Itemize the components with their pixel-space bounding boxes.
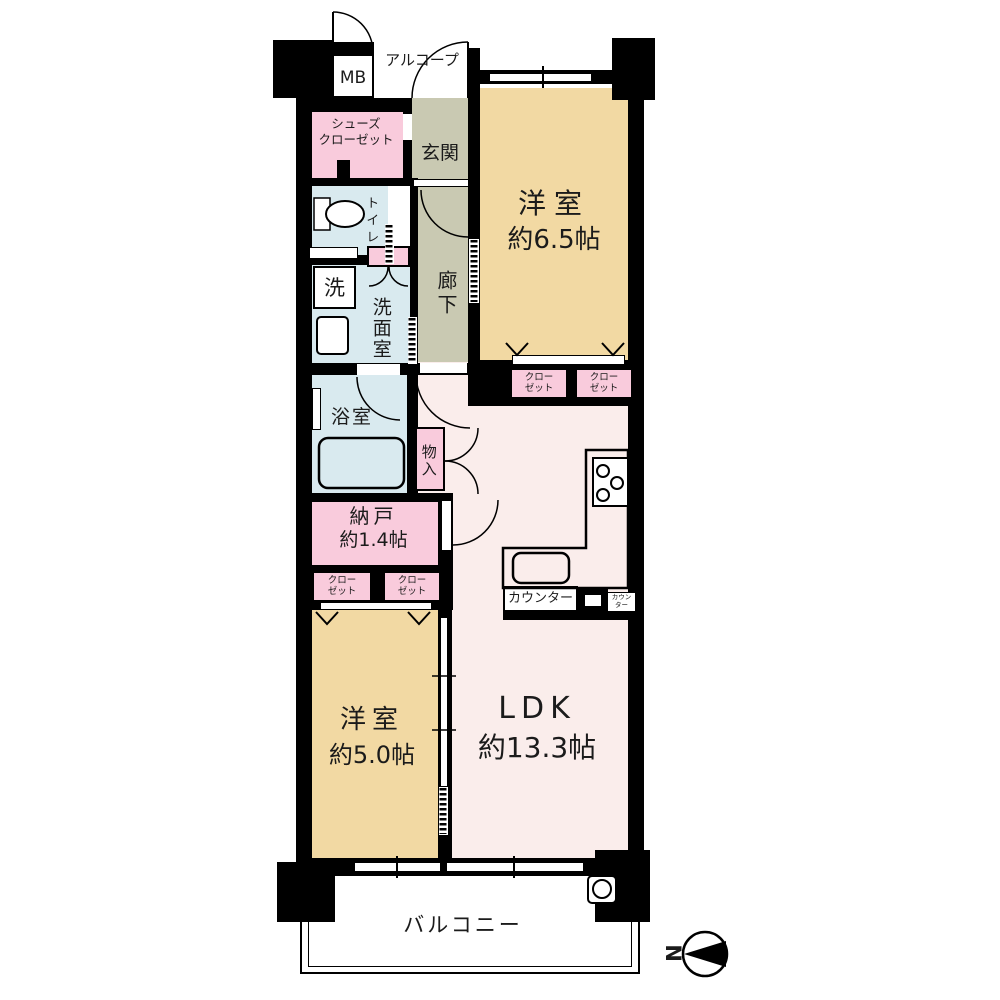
- ldk-size: 約13.3帖: [437, 730, 637, 765]
- storeroom-size: 約1.4帖: [306, 529, 441, 553]
- shoes-closet-line1: シューズ: [306, 116, 406, 132]
- storage-door-arc: [445, 428, 478, 461]
- ldk-door-arc: [416, 374, 470, 428]
- storage-label: 物入: [419, 432, 438, 490]
- wash-basin-icon: [317, 317, 348, 354]
- western-room-1-size: 約6.5帖: [478, 224, 630, 257]
- shoes-closet-line2: クローゼット: [306, 132, 406, 148]
- hallway-label: 廊下: [433, 252, 458, 336]
- western-room-1-label: 洋室 約6.5帖: [478, 186, 630, 257]
- washroom-door-arc: [369, 267, 388, 286]
- compass-north-label: N: [660, 941, 686, 965]
- alcove-label: アルコープ: [376, 51, 468, 70]
- stove-burner-icon: [611, 477, 623, 489]
- kitchen-sink-icon: [513, 553, 569, 583]
- stove-burner-icon: [597, 465, 609, 477]
- stove-burner-icon: [597, 489, 609, 501]
- mb-label: MB: [332, 68, 374, 89]
- ldk-label: LDK 約13.3帖: [437, 690, 637, 765]
- storage-door-arc: [445, 461, 478, 494]
- balcony-label: バルコニー: [383, 912, 543, 938]
- laundry-label: 洗: [314, 275, 355, 301]
- bathroom-label: 浴室: [314, 406, 390, 430]
- bathtub-icon: [319, 438, 404, 488]
- western-room-2-label: 洋室 約5.0帖: [306, 704, 438, 770]
- balcony-faucet-icon: [593, 880, 611, 898]
- washroom-label: 洗面室: [368, 288, 392, 368]
- floor-plan: クロー ゼット クロー ゼット クロー ゼット クロー ゼット カウンター カウ…: [0, 0, 1000, 1000]
- closet-fold-mark: [602, 343, 624, 355]
- entrance-label: 玄関: [412, 142, 468, 166]
- floorplan-graphics: [0, 0, 1000, 1000]
- western-room-2-size: 約5.0帖: [306, 740, 438, 770]
- shoes-closet-label: シューズ クローゼット: [306, 116, 406, 147]
- washroom-door-arc: [389, 267, 408, 286]
- toilet-bowl-icon: [326, 201, 364, 227]
- closet-fold-mark: [408, 612, 430, 624]
- western-room-2-name: 洋室: [306, 704, 438, 737]
- toilet-label: トイレ: [362, 188, 378, 254]
- closet-fold-mark: [506, 343, 528, 355]
- closet-fold-mark: [316, 612, 338, 624]
- storeroom-door-arc: [453, 500, 498, 545]
- western-room-1-name: 洋室: [478, 186, 630, 221]
- ldk-name: LDK: [437, 690, 637, 728]
- storeroom-name: 納戸: [306, 504, 441, 529]
- storeroom-label: 納戸 約1.4帖: [306, 504, 441, 553]
- mb-door-arc: [333, 12, 373, 52]
- hallway-door-arc: [421, 190, 468, 237]
